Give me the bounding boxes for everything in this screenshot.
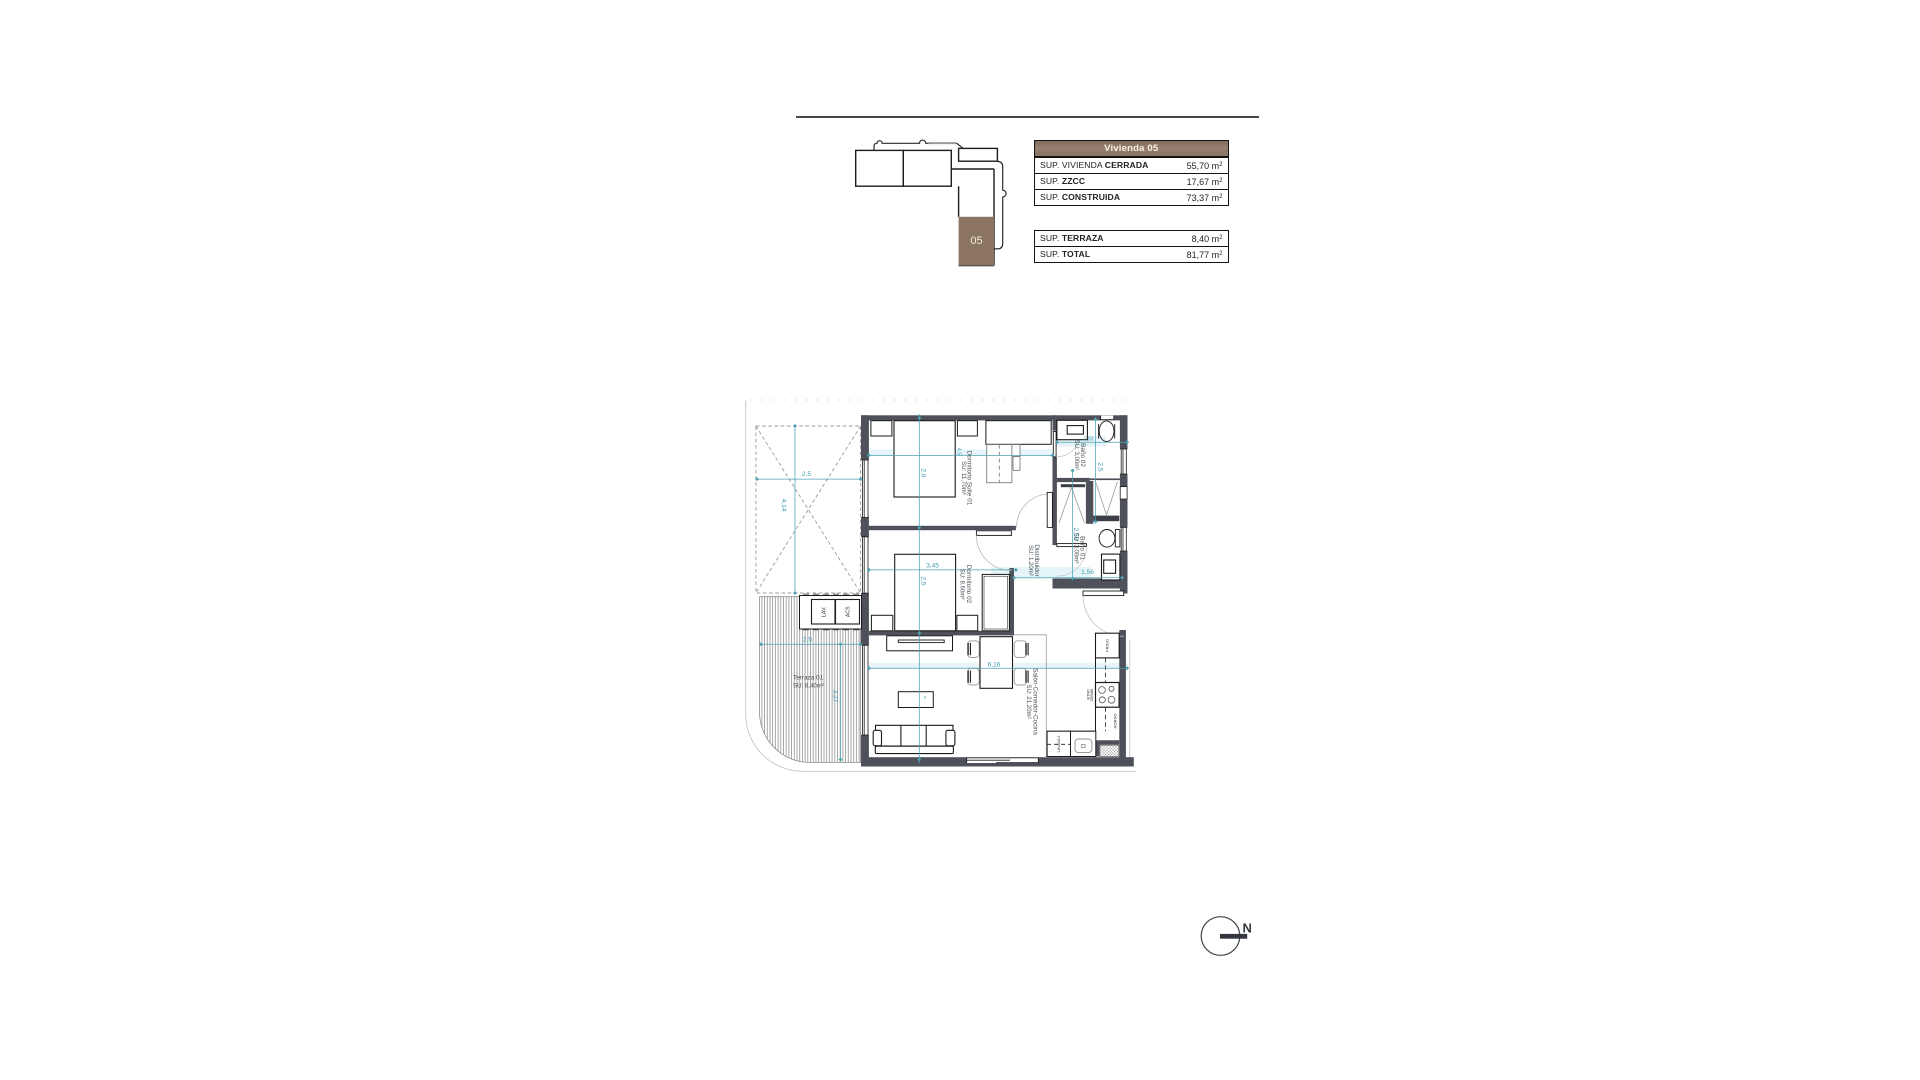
svg-text:SU: 3,00m²: SU: 3,00m² xyxy=(1072,533,1079,564)
svg-text:2,5: 2,5 xyxy=(803,636,812,643)
svg-text:3,45: 3,45 xyxy=(926,562,939,569)
svg-text:N: N xyxy=(1243,921,1252,936)
svg-text:ACS: ACS xyxy=(846,606,852,617)
svg-text:6,16: 6,16 xyxy=(988,661,1001,668)
svg-text:Terraza 01: Terraza 01 xyxy=(793,675,824,682)
svg-text:CERAM.: CERAM. xyxy=(1090,688,1094,702)
svg-text:SU: 8,40m²: SU: 8,40m² xyxy=(793,683,824,690)
svg-text:LAV.: LAV. xyxy=(821,607,827,617)
svg-text:4,5: 4,5 xyxy=(956,448,962,456)
svg-text:SU: 21,20m²: SU: 21,20m² xyxy=(1025,684,1032,718)
svg-text:HORNO: HORNO xyxy=(1113,714,1118,729)
svg-text:FRIGO: FRIGO xyxy=(1105,639,1110,652)
svg-text:SU: 3,00m²: SU: 3,00m² xyxy=(1073,440,1080,471)
svg-text:2,5: 2,5 xyxy=(1097,462,1104,471)
svg-text:2,5: 2,5 xyxy=(920,576,927,585)
svg-text:SU: 1,20m²: SU: 1,20m² xyxy=(1027,545,1034,576)
svg-text:4,14: 4,14 xyxy=(780,499,787,512)
svg-text:05: 05 xyxy=(970,235,982,247)
svg-text:SU: 8,60m²: SU: 8,60m² xyxy=(959,569,966,600)
svg-text:LAVAVAJ.: LAVAVAJ. xyxy=(1056,735,1061,753)
svg-text:2,5: 2,5 xyxy=(802,471,811,478)
svg-text:1,50: 1,50 xyxy=(1084,437,1094,443)
svg-text:3,27: 3,27 xyxy=(832,690,839,703)
svg-text:SU: 11,70m²: SU: 11,70m² xyxy=(960,461,967,495)
svg-text:2,6: 2,6 xyxy=(920,468,927,477)
svg-text:1,56: 1,56 xyxy=(1081,569,1094,576)
